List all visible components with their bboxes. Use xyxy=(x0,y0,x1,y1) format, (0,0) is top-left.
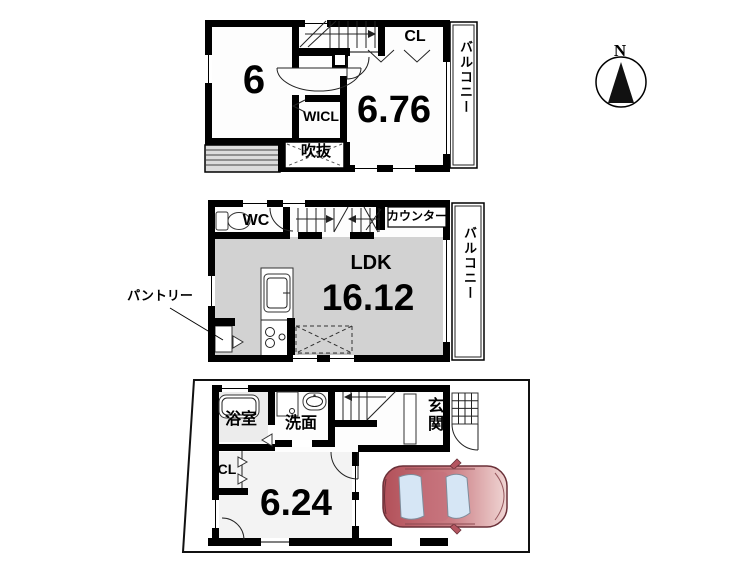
washing-machine-icon xyxy=(277,392,298,416)
floor1-washroom-label: 洗面 xyxy=(285,415,317,433)
floor3-void-label: 吹抜 xyxy=(301,144,331,161)
floor2-counter-label: カウンター xyxy=(387,210,447,223)
floor3-eaves-stripes xyxy=(205,145,280,172)
sink-icon xyxy=(303,393,326,410)
shoe-cabinet xyxy=(404,394,416,444)
floor2-ldk-size: 16.12 xyxy=(322,278,415,319)
floor2-balcony-label: バルコニー xyxy=(460,226,479,351)
floor1-bath-label: 浴室 xyxy=(225,411,257,429)
floor2-wc-label: WC xyxy=(243,212,270,230)
floor3-closet-label: CL xyxy=(404,28,425,46)
car-icon xyxy=(383,459,507,534)
compass-north-label: N xyxy=(614,42,626,61)
floor3-room676-size: 6.76 xyxy=(357,90,431,132)
floor3-balcony-label: バルコニー xyxy=(456,40,475,170)
floor1-room624-size: 6.24 xyxy=(260,483,332,524)
floorplan-page: N 6 CL WICL 吹抜 6.76 バルコニー WC カウンター LDK 1… xyxy=(0,0,736,577)
floor3-wicl-label: WICL xyxy=(303,109,339,124)
floor1-closet-label: CL xyxy=(218,462,237,477)
floor2-ldk-label: LDK xyxy=(350,252,391,274)
floor1-entrance-label: 玄関 xyxy=(421,397,445,449)
north-compass-icon xyxy=(596,57,646,107)
floor3-room6-size: 6 xyxy=(243,58,265,102)
floor2-pantry-label: パントリー xyxy=(127,289,193,303)
